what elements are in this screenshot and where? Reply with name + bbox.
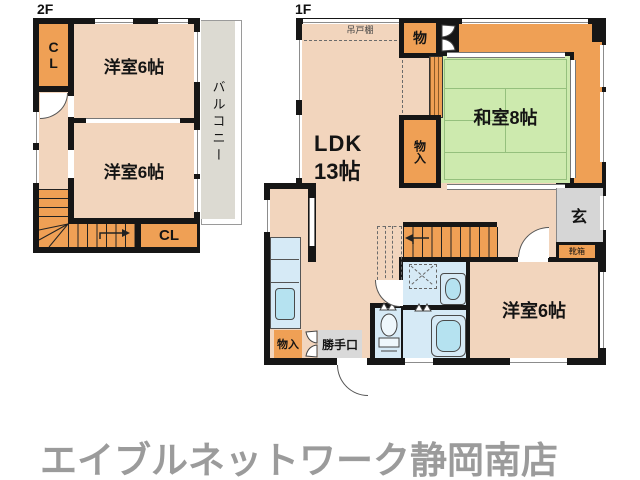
back-door-label: 勝手口 — [318, 330, 362, 358]
door-opening-2f-room-bottom — [68, 150, 74, 178]
window-2f-left-2 — [33, 150, 39, 183]
staircase-2f-upper-flight — [39, 189, 68, 224]
kitchen-counter-seam-1 — [270, 259, 299, 260]
toilet-icon — [378, 312, 400, 356]
engawa-top — [459, 24, 592, 52]
staircase-1f-arrow-icon — [405, 234, 431, 246]
storage-bottom-label: 物入 — [274, 330, 302, 358]
kitchen-counter-seam-2 — [270, 282, 299, 283]
window-1f-left-2 — [296, 115, 302, 178]
window-2f-right-2 — [194, 130, 200, 174]
window-1f-top-engawa — [462, 19, 588, 24]
window-1f-bath — [405, 358, 433, 365]
staircase-2f-arrow-icon — [98, 229, 132, 241]
window-1f-right-2 — [600, 92, 606, 162]
bifold-door-icon-top — [441, 24, 459, 52]
room-2f-bottom-label: 洋室6帖 — [74, 155, 194, 185]
floor1-label: 1F — [295, 1, 311, 17]
hanging-cupboard-label: 吊戸棚 — [325, 23, 395, 35]
window-2f-top-1 — [95, 19, 133, 24]
washing-machine-x-icon — [409, 264, 435, 287]
balcony-label: バルコニー — [201, 30, 235, 215]
shoji-bottom — [447, 184, 565, 190]
washbasin-bowl — [445, 278, 461, 300]
floorplan-canvas: 2F バルコニー CL 洋室6帖 洋室6帖 CL 1F — [0, 0, 640, 480]
japanese-room-label: 和室8帖 — [441, 101, 570, 133]
closet-2f-top-label: CL — [39, 24, 68, 86]
window-1f-right-1 — [600, 45, 606, 87]
room-2f-top-label: 洋室6帖 — [74, 50, 194, 80]
front-door — [600, 196, 606, 230]
window-1f-right-3 — [600, 272, 606, 348]
floor2-label: 2F — [37, 1, 53, 17]
board-strip — [429, 56, 443, 118]
bifold-door-icon-bottom — [305, 330, 318, 358]
window-2f-top-2 — [158, 19, 188, 24]
window-1f-top-ldk — [303, 19, 399, 24]
ldk-size-label: 13帖 — [314, 157, 394, 183]
back-door-opening — [337, 358, 367, 365]
storage-mid-label: 物入 — [404, 120, 436, 183]
door-opening-2f-room-top — [68, 96, 74, 117]
storage-top-label: 物 — [404, 23, 436, 53]
genkan-label: 玄 — [556, 188, 602, 242]
bathtub-inner — [436, 320, 461, 352]
store-name: エイブルネットワーク静岡南店 — [40, 430, 558, 480]
hanging-cupboard-line-h — [304, 40, 402, 41]
shoji-top — [447, 52, 565, 58]
stairwell-dash-1 — [385, 226, 386, 288]
window-2f-right-1 — [194, 32, 200, 82]
window-2f-left-1 — [33, 112, 39, 143]
staircase-2f-fan-lines — [39, 224, 68, 247]
ldk-hall-sliding-door — [309, 198, 315, 246]
tatami-line-2 — [444, 152, 567, 153]
engawa-right — [574, 42, 602, 183]
door-arc-back-door — [337, 365, 368, 396]
shoji-right — [570, 60, 576, 178]
stairwell-dash-2 — [392, 226, 393, 288]
window-1f-kitchen — [264, 200, 270, 232]
western-room-1f-label: 洋室6帖 — [470, 296, 598, 324]
folding-door-bath-icon — [414, 303, 432, 312]
shoe-box-label: 靴箱 — [559, 245, 595, 258]
window-1f-western-room — [510, 358, 567, 365]
closet-2f-bottom-label: CL — [141, 224, 197, 247]
window-1f-left-1 — [296, 40, 302, 100]
kitchen-sink — [275, 288, 295, 320]
balcony-door-2f — [194, 179, 200, 212]
